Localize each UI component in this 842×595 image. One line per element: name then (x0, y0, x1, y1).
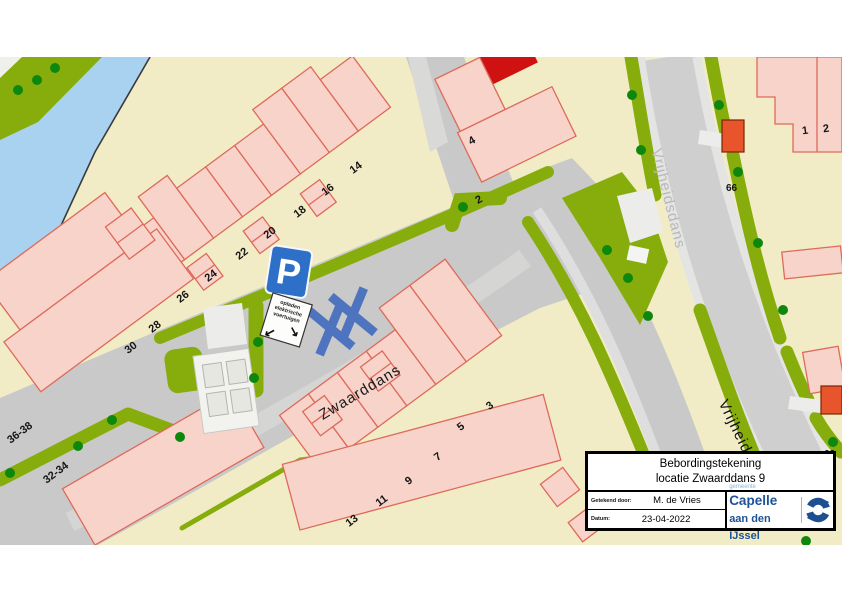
logo-divider (801, 497, 802, 523)
date-value: 23-04-2022 (610, 514, 722, 525)
drawn-by-row: Getekend door: M. de Vries (588, 492, 725, 511)
logo-ijssel-words: aan den IJssel (729, 513, 771, 542)
house-number-66: 66 (726, 183, 737, 194)
capelle-logo-icon (805, 495, 831, 525)
logo-gemeente-word: gemeente (729, 484, 756, 490)
drawn-by-label: Getekend door: (591, 498, 632, 504)
title-block-fields: Getekend door: M. de Vries Datum: 23-04-… (588, 492, 727, 528)
drawing-title-line1: Bebordingstekening (590, 457, 831, 472)
title-block: Bebordingstekening locatie Zwaarddans 9 … (585, 451, 836, 531)
garage-structure (193, 348, 259, 433)
date-label: Datum: (591, 516, 610, 522)
drawn-by-value: M. de Vries (632, 495, 723, 506)
municipality-logo: gemeente Capelle aan den IJssel (727, 492, 833, 528)
date-row: Datum: 23-04-2022 (588, 510, 725, 528)
municipality-logo-text: gemeente Capelle aan den IJssel (729, 476, 798, 543)
logo-capelle-word: Capelle (729, 493, 777, 508)
signage-drawing-page: { "map": { "street_labels": { "zwaarddan… (0, 0, 842, 595)
